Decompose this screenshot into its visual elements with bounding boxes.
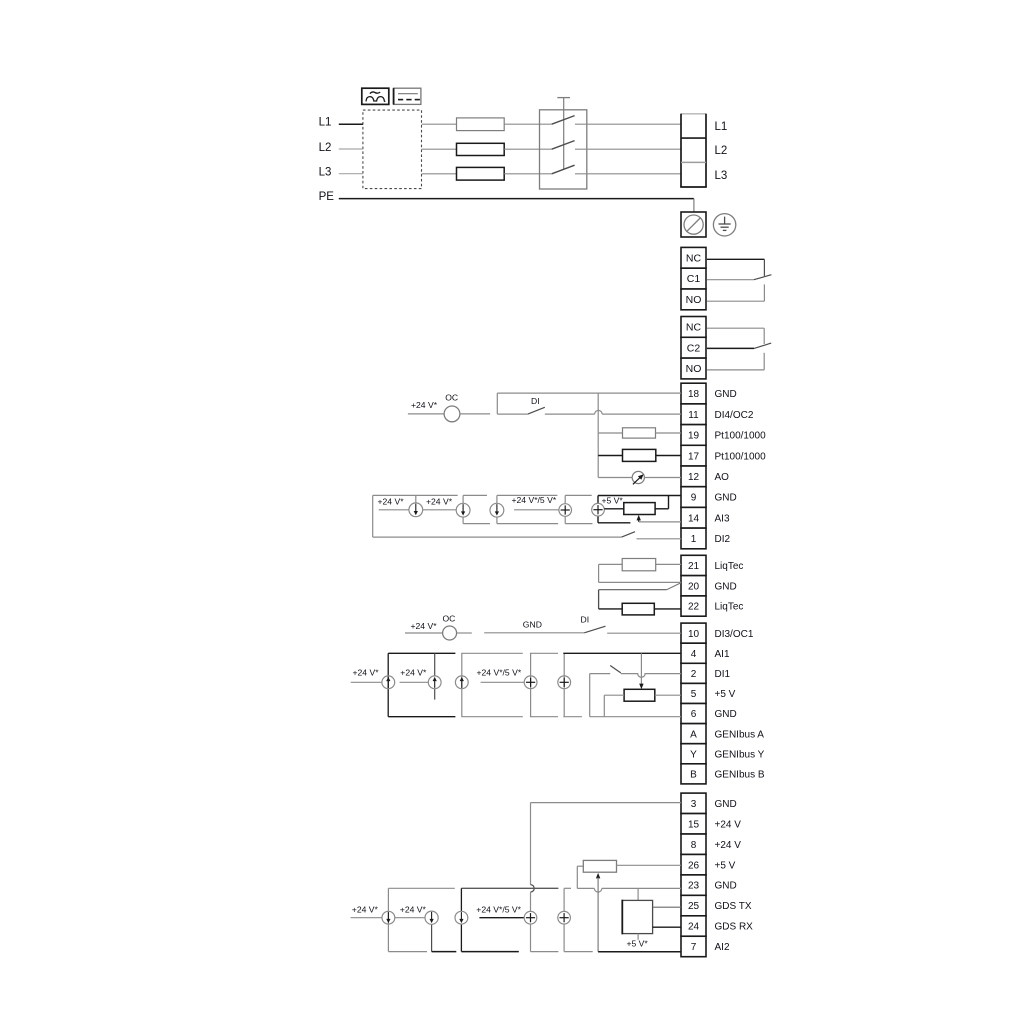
- svg-text:+5 V*: +5 V*: [602, 495, 624, 505]
- svg-text:19: 19: [688, 431, 700, 442]
- svg-text:GND: GND: [715, 389, 737, 400]
- svg-text:LiqTec: LiqTec: [715, 561, 744, 572]
- svg-text:GDS RX: GDS RX: [715, 922, 754, 933]
- svg-text:GND: GND: [715, 881, 737, 892]
- svg-text:DI3/OC1: DI3/OC1: [715, 629, 754, 640]
- svg-text:+24 V*/5 V*: +24 V*/5 V*: [512, 495, 557, 505]
- svg-text:L1: L1: [319, 116, 332, 128]
- svg-text:21: 21: [688, 561, 700, 572]
- svg-text:+5 V: +5 V: [715, 860, 736, 871]
- svg-text:B: B: [690, 769, 697, 780]
- svg-text:GENIbus B: GENIbus B: [715, 769, 765, 780]
- svg-text:PE: PE: [319, 191, 335, 203]
- svg-text:L3: L3: [319, 167, 332, 179]
- svg-text:26: 26: [688, 860, 700, 871]
- svg-text:L1: L1: [715, 121, 728, 133]
- svg-text:+24 V*: +24 V*: [400, 904, 427, 914]
- svg-text:GND: GND: [715, 799, 737, 810]
- svg-text:OC: OC: [445, 393, 458, 403]
- svg-text:+24 V*/5 V*: +24 V*/5 V*: [477, 668, 522, 678]
- svg-text:DI: DI: [531, 396, 540, 406]
- svg-text:+24 V*: +24 V*: [378, 497, 405, 507]
- svg-text:18: 18: [688, 389, 700, 400]
- svg-text:+5 V*: +5 V*: [627, 938, 649, 948]
- svg-text:AI1: AI1: [715, 649, 730, 660]
- svg-text:6: 6: [691, 709, 697, 720]
- svg-text:8: 8: [691, 840, 697, 851]
- svg-text:+24 V*: +24 V*: [353, 668, 380, 678]
- svg-text:DI1: DI1: [715, 669, 731, 680]
- svg-text:23: 23: [688, 881, 700, 892]
- svg-text:17: 17: [688, 451, 700, 462]
- svg-text:1: 1: [691, 534, 697, 545]
- svg-text:GND: GND: [523, 620, 542, 630]
- svg-text:C2: C2: [687, 342, 701, 354]
- svg-text:DI4/OC2: DI4/OC2: [715, 410, 754, 421]
- svg-text:NC: NC: [686, 252, 702, 264]
- svg-text:+5 V: +5 V: [715, 689, 736, 700]
- svg-text:+24 V*/5 V*: +24 V*/5 V*: [476, 904, 521, 914]
- svg-text:AI2: AI2: [715, 942, 730, 953]
- svg-text:11: 11: [688, 410, 699, 421]
- svg-text:22: 22: [688, 602, 700, 613]
- svg-text:LiqTec: LiqTec: [715, 602, 744, 613]
- svg-text:3: 3: [691, 799, 697, 810]
- svg-text:L3: L3: [715, 170, 728, 182]
- svg-text:GDS TX: GDS TX: [715, 901, 752, 912]
- svg-text:+24 V*: +24 V*: [352, 904, 379, 914]
- svg-text:AI3: AI3: [715, 513, 730, 524]
- svg-text:+24 V*: +24 V*: [400, 668, 427, 678]
- svg-text:Y: Y: [690, 749, 697, 760]
- svg-text:AO: AO: [715, 472, 730, 483]
- svg-text:+24 V*: +24 V*: [426, 497, 453, 507]
- svg-text:20: 20: [688, 581, 700, 592]
- svg-text:A: A: [690, 729, 697, 740]
- svg-text:5: 5: [691, 689, 697, 700]
- svg-text:L2: L2: [715, 145, 728, 157]
- svg-text:GENIbus A: GENIbus A: [715, 729, 765, 740]
- svg-text:24: 24: [688, 922, 700, 933]
- svg-text:10: 10: [688, 629, 700, 640]
- svg-text:4: 4: [691, 649, 697, 660]
- svg-text:9: 9: [691, 493, 697, 504]
- svg-text:12: 12: [688, 472, 700, 483]
- svg-text:GND: GND: [715, 493, 737, 504]
- svg-text:DI: DI: [581, 614, 590, 624]
- svg-text:2: 2: [691, 669, 697, 680]
- svg-text:DI2: DI2: [715, 534, 731, 545]
- svg-text:7: 7: [691, 942, 697, 953]
- svg-text:+24 V: +24 V: [715, 840, 742, 851]
- svg-text:+24 V*: +24 V*: [411, 621, 438, 631]
- svg-text:GENIbus Y: GENIbus Y: [715, 749, 765, 760]
- svg-text:NO: NO: [686, 363, 702, 375]
- svg-text:C1: C1: [687, 273, 701, 285]
- svg-text:NC: NC: [686, 322, 702, 334]
- svg-text:L2: L2: [319, 142, 332, 154]
- svg-text:Pt100/1000: Pt100/1000: [715, 451, 767, 462]
- svg-text:GND: GND: [715, 581, 737, 592]
- svg-text:15: 15: [688, 819, 700, 830]
- svg-text:GND: GND: [715, 709, 737, 720]
- svg-text:OC: OC: [443, 614, 456, 624]
- svg-text:+24 V*: +24 V*: [411, 400, 438, 410]
- svg-text:NO: NO: [686, 294, 702, 306]
- svg-text:25: 25: [688, 901, 700, 912]
- svg-text:+24 V: +24 V: [715, 819, 742, 830]
- svg-text:14: 14: [688, 513, 700, 524]
- svg-text:Pt100/1000: Pt100/1000: [715, 431, 767, 442]
